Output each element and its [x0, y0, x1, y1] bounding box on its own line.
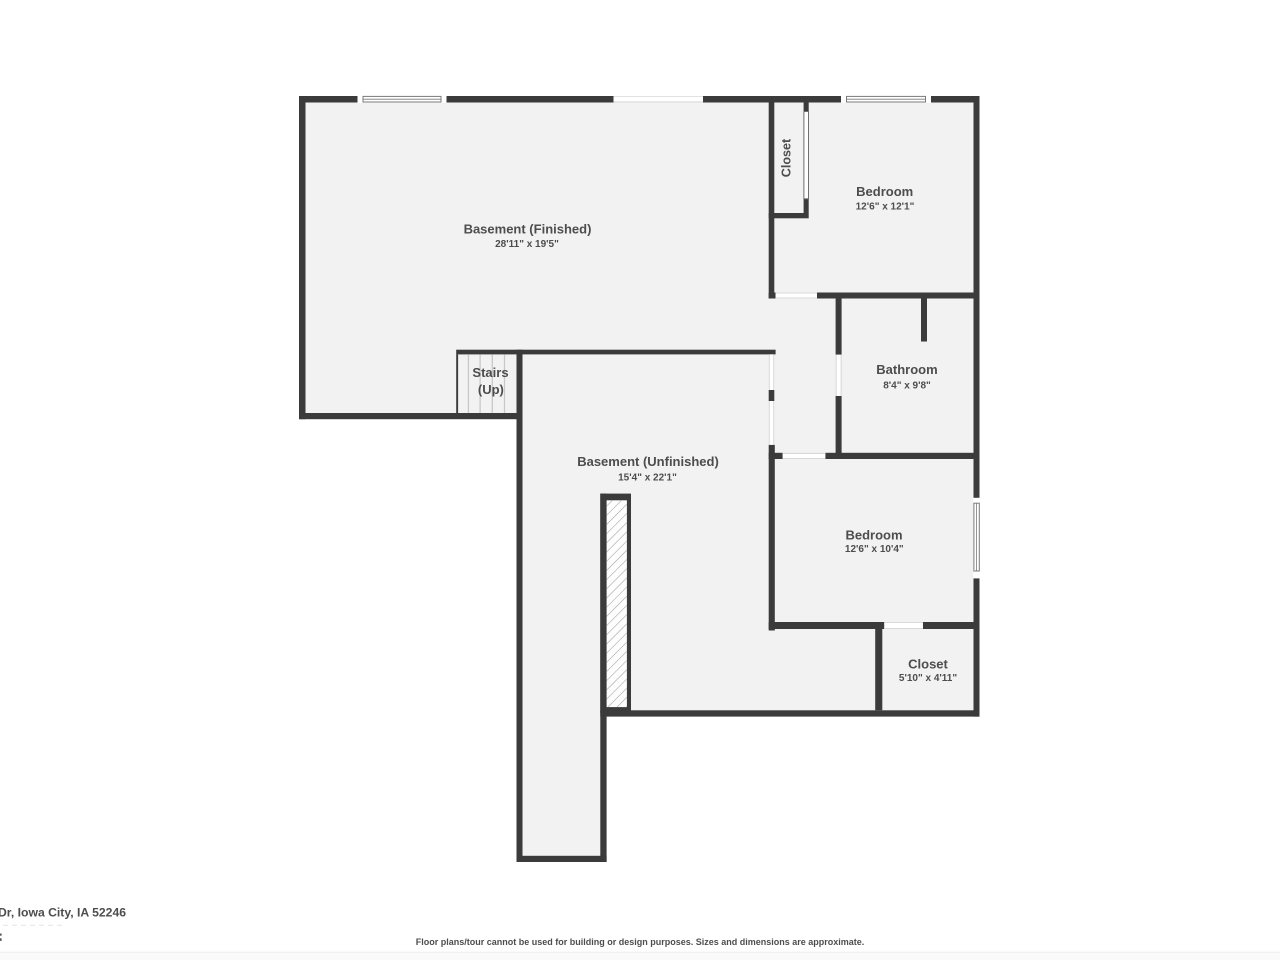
- svg-text:Floor plans/tour cannot be use: Floor plans/tour cannot be used for buil…: [416, 937, 865, 947]
- svg-text:Dr, Iowa City, IA 52246: Dr, Iowa City, IA 52246: [0, 906, 126, 920]
- svg-text:Basement (Finished): Basement (Finished): [464, 222, 592, 237]
- svg-text:Closet: Closet: [780, 138, 794, 177]
- svg-text:12'6" x 10'4": 12'6" x 10'4": [845, 544, 904, 555]
- svg-text:5'10" x 4'11": 5'10" x 4'11": [899, 673, 957, 684]
- svg-text:12'6" x 12'1": 12'6" x 12'1": [856, 202, 915, 213]
- svg-text:Basement (Unfinished): Basement (Unfinished): [577, 454, 719, 469]
- svg-text:Bedroom: Bedroom: [856, 184, 913, 199]
- svg-text:Bedroom: Bedroom: [845, 528, 902, 543]
- svg-text:15'4" x 22'1": 15'4" x 22'1": [618, 473, 677, 484]
- svg-text:Closet: Closet: [908, 657, 948, 672]
- svg-text:(Up): (Up): [478, 382, 504, 397]
- svg-text:Bathroom: Bathroom: [876, 362, 937, 377]
- svg-text:Stairs: Stairs: [472, 365, 508, 380]
- svg-text:28'11" x 19'5": 28'11" x 19'5": [495, 239, 559, 250]
- svg-text:8'4" x 9'8": 8'4" x 9'8": [883, 380, 931, 391]
